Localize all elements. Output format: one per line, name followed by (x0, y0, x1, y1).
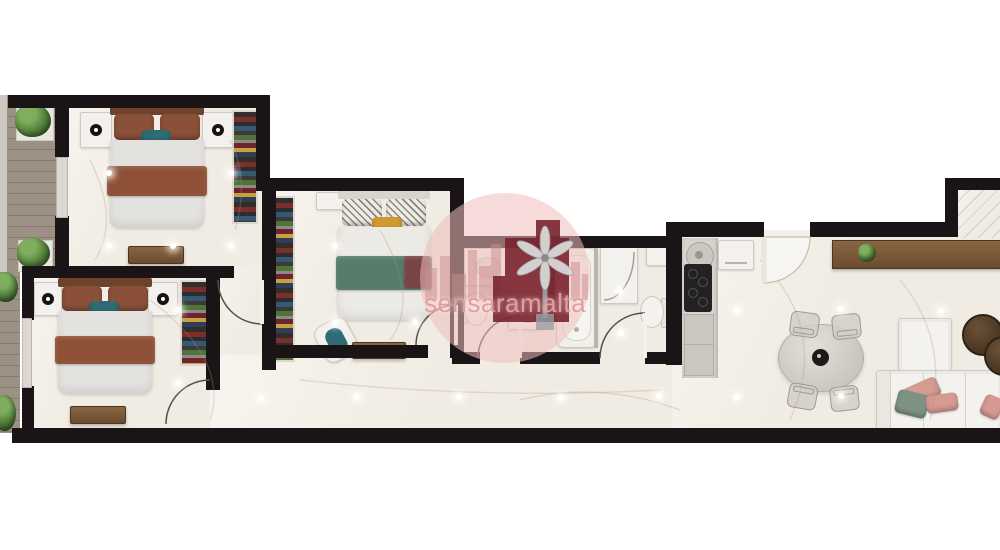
ceiling-light (558, 395, 564, 401)
ceiling-light (617, 288, 623, 294)
wall (262, 178, 276, 370)
window (56, 157, 68, 218)
wall (256, 95, 270, 191)
blanket (107, 166, 207, 196)
tub-drain (574, 327, 579, 332)
wall (206, 266, 220, 390)
balcony-railing (0, 95, 7, 272)
table-lamp (157, 293, 169, 305)
dining-chair (786, 382, 819, 412)
kitchen-appliance (718, 240, 754, 270)
ceiling-light (332, 243, 338, 249)
burner (688, 288, 698, 298)
wall (682, 222, 764, 237)
wall (55, 95, 69, 157)
centerpiece-highlight (817, 354, 821, 358)
burner (688, 269, 698, 279)
nightstand (148, 282, 178, 316)
clothes-rack (182, 282, 206, 364)
dining-chair (788, 310, 820, 339)
potted-plant (858, 244, 876, 262)
wall (945, 178, 1000, 190)
nightstand (202, 112, 234, 148)
wall (55, 216, 69, 276)
wall (810, 222, 950, 237)
ceiling-light (456, 394, 462, 400)
potted-plant (17, 238, 50, 268)
nightstand (80, 112, 112, 148)
wall (666, 222, 682, 365)
ceiling-light (838, 306, 844, 312)
table-lamp (212, 124, 224, 136)
headboard (338, 190, 430, 199)
clothes-rack (234, 112, 256, 222)
ceiling-light (656, 393, 662, 399)
ceiling-light (354, 394, 360, 400)
double-bed (110, 106, 204, 228)
burner (698, 277, 708, 287)
wall (12, 428, 1000, 443)
burner (698, 297, 708, 307)
ceiling-light (412, 319, 418, 325)
wall (22, 386, 34, 434)
ceiling-light (228, 170, 234, 176)
ceiling-light (734, 394, 740, 400)
ceiling-light (170, 243, 176, 249)
ceiling-light (618, 330, 624, 336)
wall (645, 352, 680, 364)
sofa-armrest (877, 371, 891, 429)
ceiling-light (938, 308, 944, 314)
ceiling-light (838, 393, 844, 399)
watermark-circle (420, 193, 590, 363)
ceiling-light (258, 395, 264, 401)
dining-chair (829, 385, 860, 413)
ceiling-light (106, 170, 112, 176)
bed-bench (128, 246, 184, 264)
table-lamp (42, 293, 54, 305)
ceiling-light (734, 307, 740, 313)
wall (22, 266, 234, 278)
bed-bench (70, 406, 126, 424)
table-centerpiece (812, 349, 829, 366)
double-bed (58, 278, 152, 394)
ceiling-light (332, 319, 338, 325)
kitchen-cabinet (684, 314, 714, 376)
potted-plant (15, 104, 51, 137)
appliance-handle (725, 262, 747, 264)
table-lamp (90, 124, 102, 136)
window (22, 318, 32, 388)
wall (276, 345, 428, 358)
cooktop (684, 264, 712, 312)
apartment-floor-plan: sensaramalta (0, 0, 1000, 550)
ceiling-light (228, 243, 234, 249)
cabinet-divider (684, 344, 714, 345)
sofa-cushion-line (965, 373, 966, 427)
wall (8, 95, 270, 108)
sofa-chaise (898, 318, 952, 376)
ceiling-light (175, 307, 181, 313)
wardrobe (180, 280, 208, 366)
sink-drain (695, 251, 703, 259)
dining-chair (831, 313, 862, 341)
ceiling-light (106, 243, 112, 249)
wardrobe (232, 110, 258, 224)
wall (22, 266, 34, 320)
wall (262, 178, 464, 191)
watermark-text: sensaramalta (398, 288, 612, 319)
toilet-bowl (640, 296, 664, 328)
blanket (55, 336, 155, 364)
ceiling-light (175, 380, 181, 386)
alcove-stairs (958, 188, 1000, 238)
